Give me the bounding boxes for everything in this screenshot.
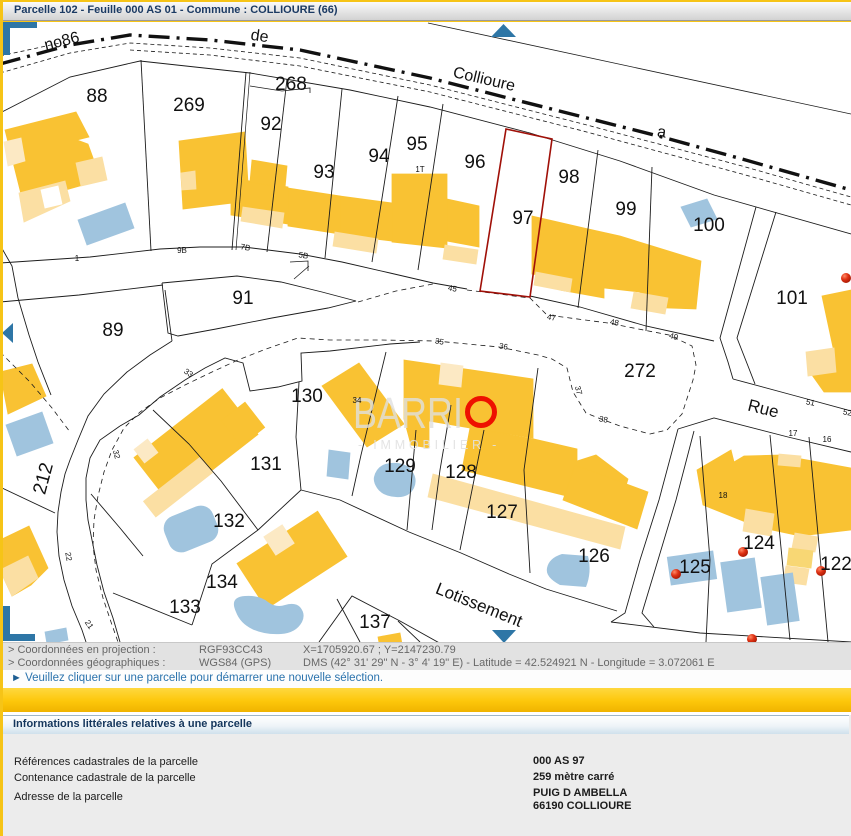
svg-text:52: 52 <box>842 407 851 418</box>
svg-text:93: 93 <box>313 162 334 183</box>
svg-text:17: 17 <box>789 429 798 438</box>
svg-text:132: 132 <box>213 511 245 532</box>
svg-text:130: 130 <box>291 386 323 407</box>
svg-text:127: 127 <box>486 502 518 523</box>
svg-text:7B: 7B <box>240 242 251 253</box>
svg-text:122: 122 <box>820 554 851 575</box>
svg-text:34: 34 <box>353 396 362 405</box>
svg-text:9B: 9B <box>177 246 187 255</box>
svg-text:de: de <box>250 27 270 46</box>
svg-text:97: 97 <box>512 208 533 229</box>
svg-text:134: 134 <box>206 572 238 593</box>
svg-text:101: 101 <box>776 288 808 309</box>
svg-text:125: 125 <box>679 557 711 578</box>
svg-text:88: 88 <box>86 86 107 107</box>
svg-text:99: 99 <box>615 199 636 220</box>
svg-text:100: 100 <box>693 215 725 236</box>
svg-text:124: 124 <box>743 533 775 554</box>
svg-text:16: 16 <box>823 435 832 444</box>
svg-text:1T: 1T <box>415 165 424 174</box>
svg-text:129: 129 <box>384 456 416 477</box>
svg-text:268: 268 <box>275 74 307 95</box>
svg-text:89: 89 <box>102 320 123 341</box>
svg-text:1: 1 <box>75 254 80 263</box>
svg-text:96: 96 <box>464 152 485 173</box>
svg-text:133: 133 <box>169 597 201 618</box>
svg-text:137: 137 <box>359 612 391 633</box>
svg-text:98: 98 <box>558 167 579 188</box>
svg-text:94: 94 <box>368 146 390 167</box>
svg-text:92: 92 <box>260 114 281 135</box>
svg-text:128: 128 <box>445 462 477 483</box>
svg-text:131: 131 <box>250 454 282 475</box>
svg-text:95: 95 <box>406 134 427 155</box>
svg-text:18: 18 <box>719 491 728 500</box>
svg-text:269: 269 <box>173 95 205 116</box>
svg-text:BARRI: BARRI <box>353 389 463 438</box>
svg-text:126: 126 <box>578 546 610 567</box>
svg-text:91: 91 <box>232 288 253 309</box>
svg-text:272: 272 <box>624 361 656 382</box>
svg-text:5B: 5B <box>298 250 309 261</box>
svg-text:- IMMOBILIER -: - IMMOBILIER - <box>358 438 500 452</box>
